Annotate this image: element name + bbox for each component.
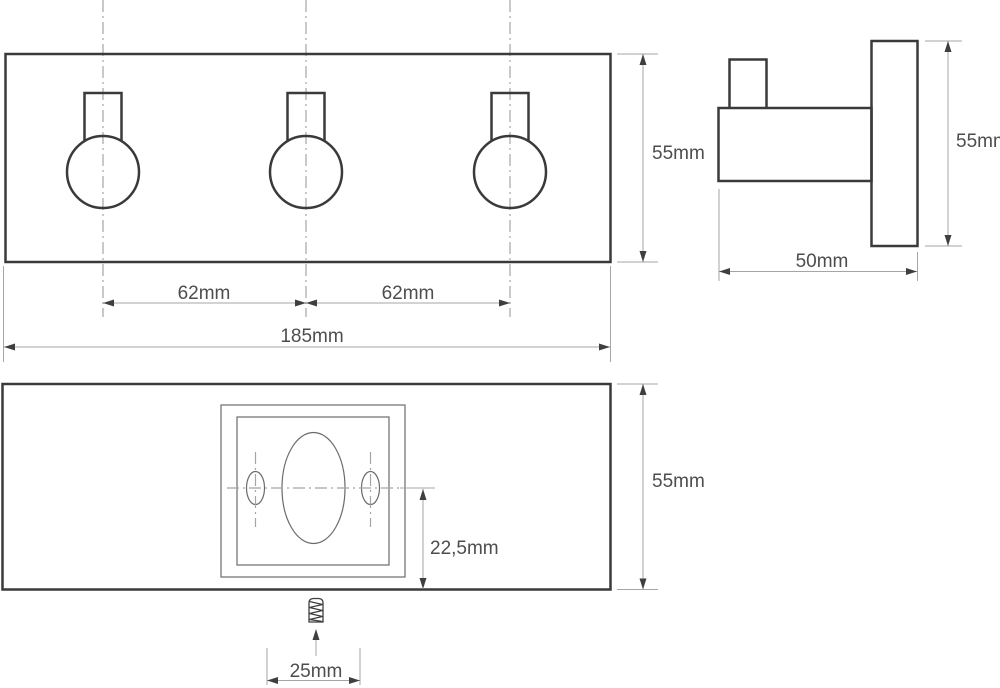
side-depth-dimension: 50mm [719,189,918,281]
arrowhead-left [267,677,278,684]
back-height-dimension: 55mm [617,384,705,590]
back-height-label: 55mm [652,471,705,492]
arrowhead-up [420,489,427,500]
hole-offset-label: 22,5mm [430,538,499,559]
mount-bracket-outer [221,405,405,577]
arrowhead-down [420,578,427,589]
side-view: 55mm 50mm [719,41,1000,281]
front-height-dimension: 55mm [617,54,705,262]
arrowhead-down [640,579,647,590]
technical-drawing-canvas: 55mm 62mm 62mm 185mm [0,0,1000,688]
screw-threads [310,602,323,622]
screw-spacing-dimension: 25mm [267,648,360,685]
mount-center-hole [282,433,345,544]
hole-offset-dimension: 22,5mm [420,489,499,589]
side-height-dimension: 55mm [925,41,1000,246]
mount-bracket-inner [237,417,389,565]
back-view: 22,5mm 55mm 25mm [3,384,705,685]
side-backplate [872,41,918,246]
arrowhead-up [640,54,647,65]
back-plate [3,384,611,590]
arrowhead-left [103,300,114,307]
arrowhead-up [640,384,647,395]
arrowhead-down [640,251,647,262]
arrowhead-down [945,235,952,246]
arrowhead-up [945,41,952,52]
front-view: 55mm 62mm 62mm 185mm [4,0,705,362]
screw-glyph [309,599,323,657]
hook-pitch-left-label: 62mm [178,283,231,304]
front-width-label: 185mm [280,326,343,347]
front-width-dimension: 185mm [4,266,611,362]
arrowhead-right [906,268,917,275]
arrowhead-right [295,300,306,307]
side-depth-label: 50mm [796,251,849,272]
arrowhead-right [499,300,510,307]
drawing-svg: 55mm 62mm 62mm 185mm [0,0,1000,688]
side-knob [730,60,767,109]
arrowhead-up [313,629,320,640]
arrowhead-left [4,344,15,351]
side-arm [719,108,872,181]
front-plate [6,54,611,262]
front-height-label: 55mm [652,143,705,164]
arrowhead-left [306,300,317,307]
arrowhead-right [599,344,610,351]
side-height-label: 55mm [956,131,1000,152]
arrowhead-right [349,677,360,684]
hook-pitch-right-label: 62mm [382,283,435,304]
screw-spacing-label: 25mm [290,661,343,682]
arrowhead-left [719,268,730,275]
